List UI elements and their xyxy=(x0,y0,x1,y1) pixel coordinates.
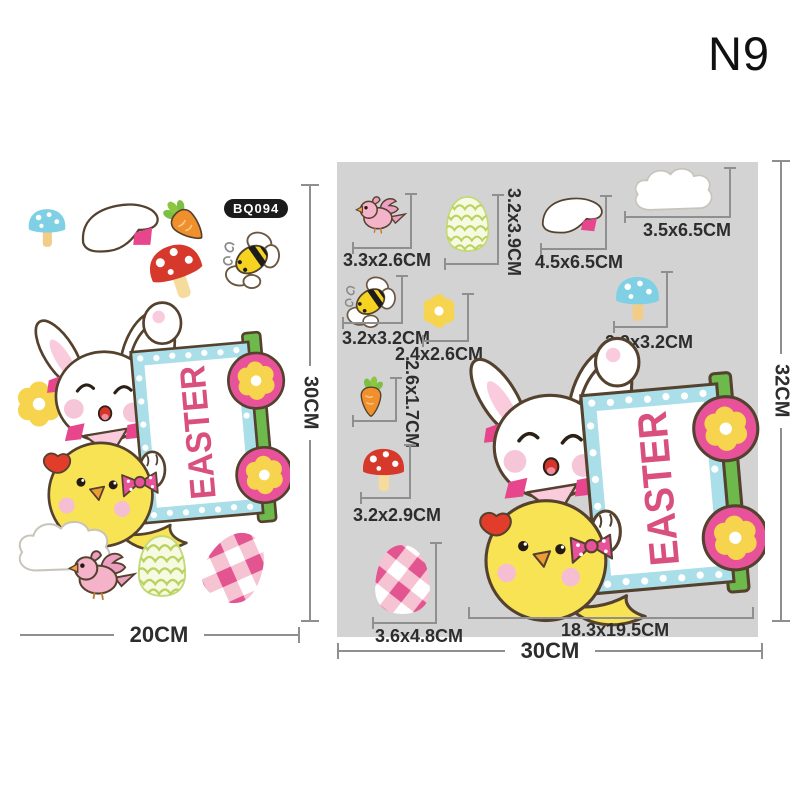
dimension-panel: 3.3x2.6CM 3.2x3.9CM 4.5x6.5CM 3.5x6.5CM … xyxy=(337,162,758,637)
bird-size-label: 3.3x2.6CM xyxy=(343,250,431,271)
panel-height-label: 32CM xyxy=(770,354,793,427)
sheet-width-measure: 20CM xyxy=(20,624,300,646)
dim-bracket xyxy=(614,272,668,328)
dim-bracket xyxy=(373,543,437,624)
measure-line xyxy=(309,186,311,366)
bird-icon xyxy=(62,547,140,601)
sheet-height-label: 30CM xyxy=(299,366,322,439)
dim-bracket xyxy=(343,276,403,324)
bee-icon xyxy=(220,231,280,289)
measure-tick xyxy=(772,620,790,622)
measure-tick xyxy=(301,620,319,622)
cloud-size-label: 3.5x6.5CM xyxy=(643,220,731,241)
measure-line xyxy=(595,650,761,652)
measure-line xyxy=(309,440,311,620)
measure-line xyxy=(780,162,782,354)
dim-bracket xyxy=(445,195,499,265)
dim-bracket xyxy=(353,194,412,249)
panel-width-label: 30CM xyxy=(505,638,596,664)
measure-tick xyxy=(298,627,300,643)
measure-line xyxy=(339,650,505,652)
sku-badge: BQ094 xyxy=(224,199,288,218)
panel-width-measure: 30CM xyxy=(337,641,763,661)
sku-text: BQ094 xyxy=(233,201,279,216)
main-graphic-measure-line xyxy=(468,617,754,619)
egg-green-size-label: 3.2x3.9CM xyxy=(503,188,524,276)
dim-bracket xyxy=(625,168,731,218)
bunny-ear-size-label: 4.5x6.5CM xyxy=(535,252,623,273)
mushroom-blue-icon xyxy=(26,205,68,251)
dim-bracket xyxy=(361,445,411,499)
dim-bracket xyxy=(541,196,607,250)
sticker-sheet-preview: BQ094 xyxy=(20,195,300,625)
measure-tick xyxy=(761,643,763,659)
carrot-size-label: 2.6x1.7CM xyxy=(401,360,422,448)
measure-line xyxy=(780,428,782,620)
mushroom-red-size-label: 3.2x2.9CM xyxy=(353,505,441,526)
dim-bracket xyxy=(353,378,397,422)
sheet-width-label: 20CM xyxy=(114,622,205,648)
variant-code: N9 xyxy=(694,26,784,81)
measure-line xyxy=(204,634,298,636)
measure-line xyxy=(20,634,114,636)
bunny-chick-easter-sign xyxy=(455,325,765,635)
egg-green-icon xyxy=(136,533,188,599)
product-dimension-image: EASTER xyxy=(0,0,800,800)
panel-height-measure: 32CM xyxy=(770,160,792,622)
sheet-height-measure: 30CM xyxy=(300,184,320,622)
